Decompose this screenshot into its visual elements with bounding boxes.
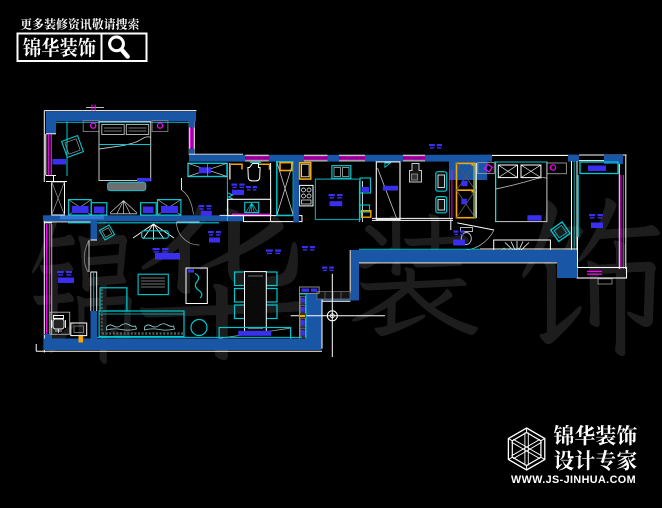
svg-text:WWW.JS-JINHUA.COM: WWW.JS-JINHUA.COM [511,474,636,486]
